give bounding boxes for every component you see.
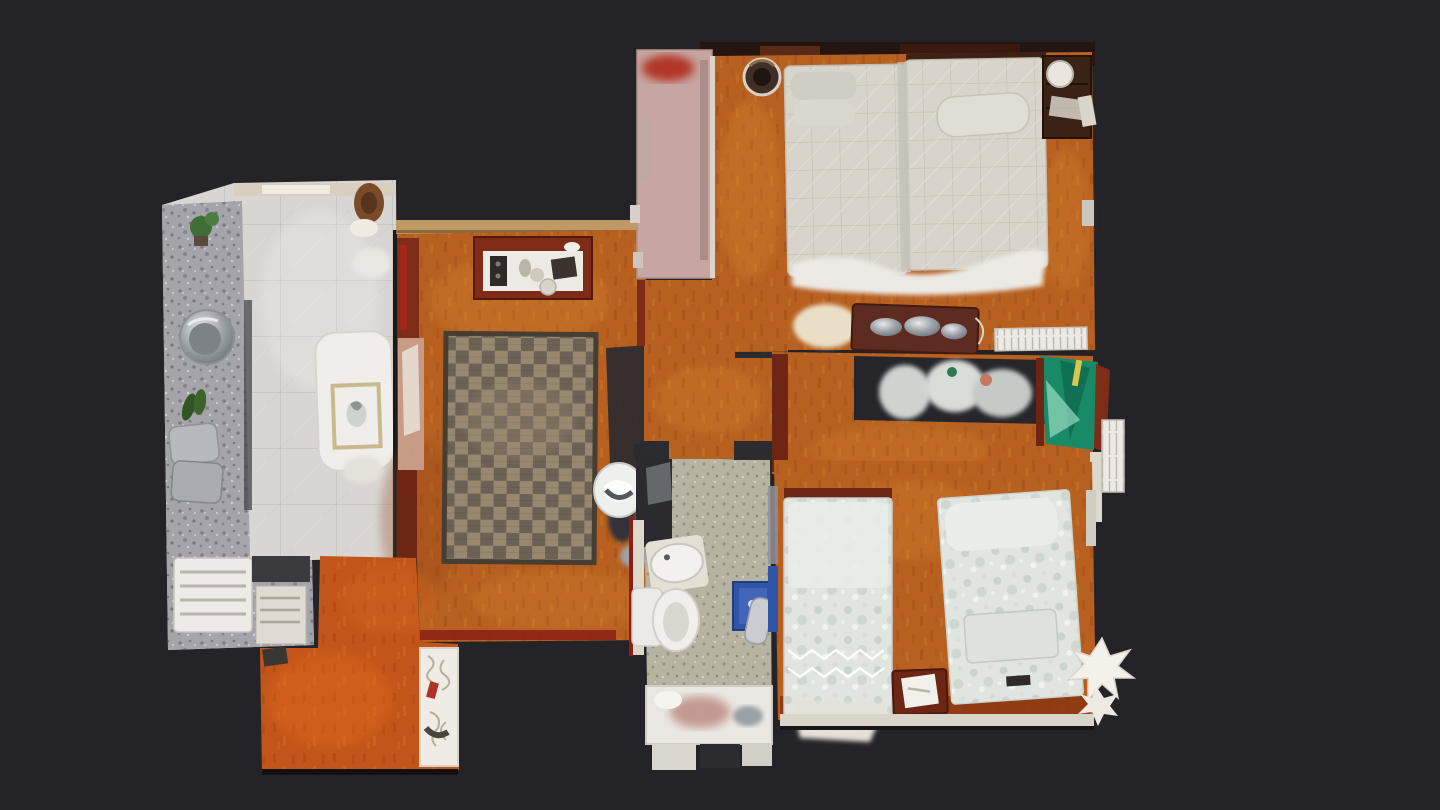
double-bed xyxy=(784,52,1050,298)
radiator-master xyxy=(995,327,1087,351)
wardrobe-door-panel xyxy=(630,50,715,278)
washbasin xyxy=(645,534,710,594)
desk-green-item xyxy=(947,367,957,377)
potted-plant-leaf xyxy=(205,212,219,226)
desk-salmon-item xyxy=(980,374,992,386)
bathroom-bottom-notch xyxy=(700,744,740,768)
bathroom[interactable] xyxy=(629,441,776,770)
red-curtain xyxy=(399,245,407,330)
washing-machine xyxy=(174,558,252,632)
bathroom-wall-top-right xyxy=(734,441,776,460)
doorframe-sliver xyxy=(637,280,645,346)
bathtub xyxy=(646,686,772,744)
bedroom-doorway-floor xyxy=(640,280,712,342)
twin-bottom-wall xyxy=(780,714,1094,727)
bed-right-folded-blanket xyxy=(964,609,1059,663)
bedside-lamp xyxy=(1047,61,1073,87)
floorplan-canvas xyxy=(0,0,1440,810)
mattress-right xyxy=(904,58,1048,270)
single-bed-right xyxy=(937,490,1083,705)
bed-left-pillow xyxy=(788,502,888,588)
entry-door-glass xyxy=(420,648,458,766)
vanity-bench xyxy=(851,304,984,355)
entry-floor-glow xyxy=(268,654,392,746)
pillow-right xyxy=(936,92,1031,138)
study-left-cabinet xyxy=(772,354,788,472)
bathroom-bottom-tab-right xyxy=(742,744,772,766)
pillow-left-2 xyxy=(793,99,855,126)
toilet xyxy=(632,588,699,651)
kitchen-sink-basin xyxy=(189,323,221,355)
wicker-basket-inner xyxy=(361,192,377,214)
twin-left-wall xyxy=(768,486,778,564)
hallway-sheen xyxy=(655,365,765,435)
entry-bottom-wall xyxy=(262,769,458,775)
entry-floor-glow-2 xyxy=(342,566,438,634)
door-reflection xyxy=(646,462,672,505)
bathroom-wall-top-left xyxy=(641,441,669,458)
twin-bedroom[interactable] xyxy=(768,460,1134,742)
sideboard xyxy=(474,237,592,299)
single-bed-left xyxy=(784,488,892,742)
bed-right-pillow xyxy=(944,497,1059,553)
bathroom-bottom-tab-left xyxy=(652,744,696,770)
twin-right-wall xyxy=(1086,490,1096,546)
bedside-table-center xyxy=(892,669,948,715)
pillow-left-1 xyxy=(790,71,856,100)
counter-edge-shadow xyxy=(244,300,252,510)
mirror-reflection xyxy=(402,344,420,436)
living-bottom-wall xyxy=(420,630,616,640)
desk-chair-3 xyxy=(972,369,1032,417)
wall-shelf-white-2 xyxy=(1082,200,1094,226)
basket-vase xyxy=(744,59,780,95)
small-appliance xyxy=(256,586,306,644)
living-floor-sheen-2 xyxy=(470,570,650,630)
kitchen-chair-top xyxy=(353,248,391,278)
plant-pot xyxy=(194,236,208,246)
basket-cloth xyxy=(350,219,378,237)
checkered-rug xyxy=(444,333,596,562)
floorplan-stage xyxy=(0,0,1440,810)
sheepskin-stool xyxy=(793,304,859,348)
master-floor-sheen xyxy=(718,100,782,280)
entry-shoes xyxy=(262,646,288,666)
dining-table xyxy=(315,331,396,472)
radiator-right xyxy=(1102,420,1124,492)
kitchen-top-wall-white xyxy=(262,185,330,194)
bathroom-doorway-floor xyxy=(669,441,734,459)
kitchen-chair-right xyxy=(343,456,383,484)
counter-appliance-2 xyxy=(171,460,224,503)
teal-wardrobe xyxy=(1036,356,1110,452)
bed-left-headboard xyxy=(784,488,892,498)
twin-bottom-wall-shadow xyxy=(780,726,1094,730)
twin-left-wall-blue xyxy=(768,566,778,632)
appliance-gap xyxy=(252,556,310,582)
desk-chair-1 xyxy=(879,365,931,419)
counter-appliance xyxy=(168,423,220,466)
low-cabinet xyxy=(397,470,417,560)
bed-right-dark-item xyxy=(1006,675,1031,687)
